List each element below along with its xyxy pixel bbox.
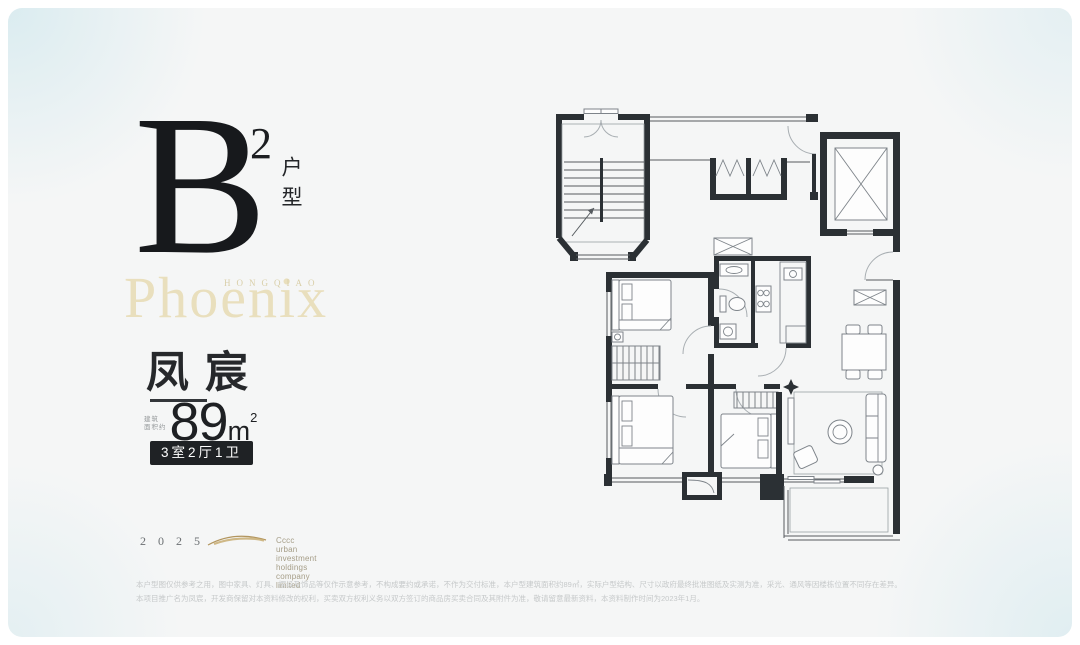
- poster-background: B 2 户型 Phoenix HONGQIAO 凤宸 建筑 面积约 89 m 2…: [8, 8, 1072, 637]
- brand-name-en: Phoenix: [124, 266, 454, 330]
- hall-cabinet: [714, 238, 752, 255]
- entry-foyer: [787, 126, 818, 200]
- bathroom: [720, 264, 748, 339]
- unit-superscript: 2: [250, 118, 272, 169]
- south-windows: [604, 472, 784, 500]
- stairwell: [556, 109, 650, 261]
- corridor-wall: [650, 114, 818, 160]
- year-label: 2025: [140, 534, 212, 548]
- floorplan-drawing: [548, 96, 943, 561]
- elevator: [820, 132, 900, 236]
- brand-name-cn: 凤宸: [146, 338, 264, 400]
- brand-block: Phoenix HONGQIAO 凤宸: [124, 266, 454, 396]
- kitchen: [756, 262, 806, 343]
- unit-letter: B: [134, 104, 263, 268]
- living-room: [776, 379, 886, 478]
- layout-badge: 3室2厅1卫: [150, 441, 253, 465]
- unit-type-label: 户型: [276, 156, 306, 216]
- swoosh-icon: [206, 532, 268, 550]
- dining-area: [842, 290, 886, 379]
- brand-name-en-small: HONGQIAO: [224, 278, 321, 288]
- unit-block: B 2 户型: [134, 104, 263, 284]
- poster: B 2 户型 Phoenix HONGQIAO 凤宸 建筑 面积约 89 m 2…: [0, 0, 1080, 645]
- footer: 2025 Cccc urban investment holdings comp…: [140, 532, 212, 554]
- disclaimer: 本户型图仅供参考之用，图中家具、灯具、摆设及饰品等仅作示意参考，不构成要约或承诺…: [136, 578, 926, 606]
- disclaimer-line-1: 本户型图仅供参考之用，图中家具、灯具、摆设及饰品等仅作示意参考，不构成要约或承诺…: [136, 578, 926, 592]
- flue-shafts: [710, 158, 787, 200]
- area-prefix: 建筑 面积约: [144, 416, 167, 432]
- area-unit-sup: 2: [250, 410, 257, 425]
- bedroom-2: [606, 384, 714, 464]
- bedroom-3: [708, 384, 780, 478]
- disclaimer-line-2: 本项目推广名为凤宸，开发商保留对本资料修改的权利，买卖双方权利义务以双方签订的商…: [136, 592, 926, 606]
- balcony: [784, 476, 900, 540]
